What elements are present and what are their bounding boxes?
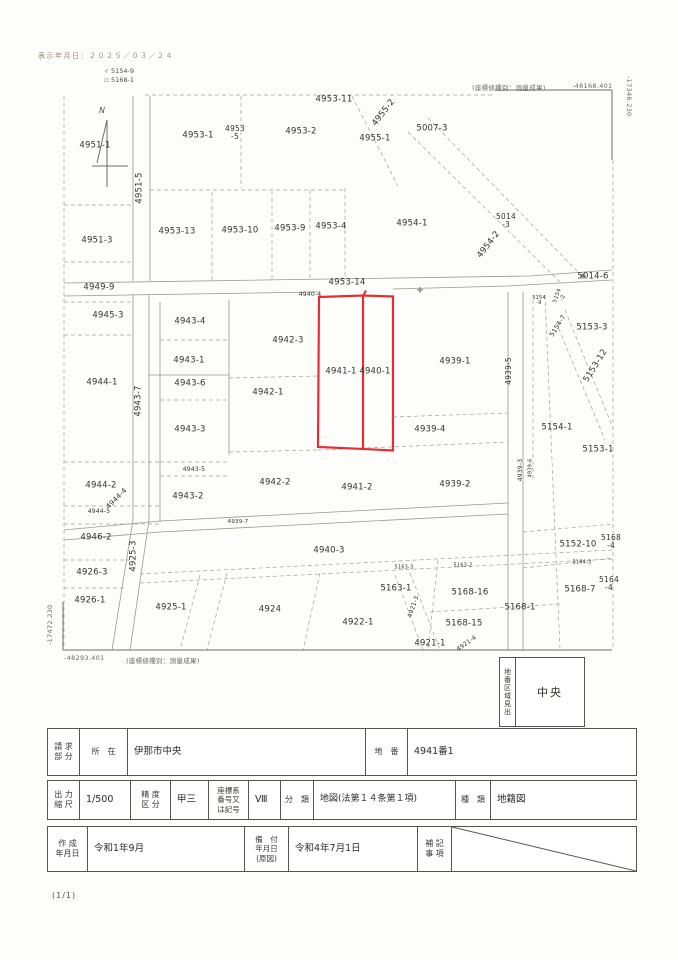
parcel-label: 4939-6 <box>528 459 533 478</box>
parcel-label: 4942-1 <box>252 389 283 398</box>
coord-type-top-right: (座標値種別：測量成果) <box>472 82 546 92</box>
table-row-dates: 作 成 年月日 令和1年9月 備 付 年月日 (原図) 令和4年7月1日 補 記… <box>47 826 637 872</box>
parcel-label: 4942-2 <box>259 479 290 488</box>
parcel-label: 4943-6 <box>174 380 205 389</box>
parcel-label: 4925-3 <box>130 540 139 571</box>
coord-value-left-edge: -17472.230 <box>46 605 54 646</box>
parcel-label: 4940-1 <box>359 368 390 377</box>
parcel-label: 4953 -5 <box>225 125 245 141</box>
parcel-label: 5152-10 <box>560 541 597 550</box>
parcel-label: 4943-1 <box>173 357 204 366</box>
north-arrow-label: N <box>99 106 105 115</box>
parcel-label: 4946-2 <box>80 534 111 543</box>
parcel-label: 4921-1 <box>414 640 445 649</box>
parcel-label: 4926-3 <box>76 569 107 578</box>
coord-type-bottom-left: (座標値種別：測量成果) <box>126 655 200 665</box>
parcel-label: 5154 -9 <box>532 296 546 307</box>
coord-value-bottom-left: -48293.401 <box>64 654 105 662</box>
header-requested-part: 請 求 部 分 <box>48 729 80 775</box>
table-row-location: 請 求 部 分 所 在 伊那市中央 地 番 4941番1 <box>47 728 637 776</box>
page-number: (1/1) <box>52 891 76 900</box>
parcel-label: 5163-1 <box>380 585 411 594</box>
parcel-label: 4943-4 <box>174 318 205 327</box>
value-coordinate-system: Ⅷ <box>249 781 281 819</box>
parcel-label: 4940-3 <box>313 547 344 556</box>
parcel-label: 5153-3 <box>576 324 607 333</box>
parcel-label: 4941-1 <box>325 368 356 377</box>
parcel-label: 4939-2 <box>439 481 470 490</box>
parcel-label: 5168-15 <box>446 620 483 629</box>
parcel-label: 5014 -3 <box>496 213 516 229</box>
parcel-label: 4939-7 <box>228 520 249 526</box>
district-index-title: 地番区域見出 <box>500 658 516 726</box>
parcel-label: 5014-6 <box>577 273 608 282</box>
parcel-label: 4953-13 <box>159 228 196 237</box>
parcel-label: 4953-4 <box>315 223 346 232</box>
parcel-label: 4953-2 <box>285 128 316 137</box>
parcel-label: 4943-5 <box>183 467 205 473</box>
parcel-label: 5163-2 <box>454 563 473 568</box>
value-supplementary-note-empty <box>452 827 636 871</box>
parcel-label: 5168 -4 <box>601 534 621 550</box>
parcel-label: 4925-1 <box>155 604 186 613</box>
parcel-label: 4926-1 <box>74 597 105 606</box>
parcel-label: 4940-4 <box>299 292 321 298</box>
header-precision-class: 精 度 区 分 <box>131 781 171 819</box>
parcel-label: 4949-9 <box>83 284 114 293</box>
parcel-label: 4954-1 <box>396 220 427 229</box>
parcel-label: 4924 <box>259 606 281 615</box>
parcel-label: 4944-1 <box>86 379 117 388</box>
parcel-label: 4939-1 <box>439 358 470 367</box>
parcel-label: 4942-3 <box>272 337 303 346</box>
value-classification: 地図(法第１４条第１項) <box>314 781 456 819</box>
value-precision-class: 甲三 <box>171 781 209 819</box>
parcel-label: 5168-7 <box>564 586 595 595</box>
parcel-label: 5007-3 <box>416 125 447 134</box>
parcel-label: 4951-5 <box>136 172 145 203</box>
parcel-label: 4943-3 <box>174 426 205 435</box>
parcel-label: 4955-1 <box>359 135 390 144</box>
parcel-label: 4953-11 <box>316 96 353 105</box>
value-output-scale: 1/500 <box>80 781 131 819</box>
parcel-label: 4944-2 <box>85 482 116 491</box>
value-created-date: 令和1年9月 <box>88 827 245 871</box>
header-location: 所 在 <box>80 729 128 775</box>
value-location: 伊那市中央 <box>128 729 366 775</box>
header-created-date: 作 成 年月日 <box>48 827 88 871</box>
parcel-label: 4943-2 <box>172 493 203 502</box>
parcel-label: 4951-1 <box>79 142 110 151</box>
value-lot-number: 4941番1 <box>408 729 636 775</box>
table-row-map-attributes: 出 力 縮 尺 1/500 精 度 区 分 甲三 座標系 番号又 は記号 Ⅷ 分… <box>47 780 637 820</box>
header-filed-date: 備 付 年月日 (原図) <box>245 827 289 871</box>
parcel-label: 5168-16 <box>452 589 489 598</box>
header-coordinate-system: 座標系 番号又 は記号 <box>209 781 249 819</box>
header-classification: 分 類 <box>281 781 314 819</box>
parcel-label: 4939-5 <box>505 357 513 385</box>
parcel-label: 5164-3 <box>573 560 592 565</box>
parcel-label: 5168-1 <box>504 604 535 613</box>
coord-value-top-right: -48168.401 <box>572 82 613 90</box>
header-supplementary-note: 補 記 事 項 <box>418 827 452 871</box>
coord-value-right-edge: -17346.230 <box>625 76 633 117</box>
value-filed-date: 令和4年7月1日 <box>289 827 418 871</box>
value-kind: 地籍図 <box>491 781 636 819</box>
parcel-label: 4953-14 <box>329 279 366 288</box>
parcel-label: 4943-7 <box>135 385 144 416</box>
parcel-label: 4945-3 <box>92 312 123 321</box>
parcel-label: 4953-1 <box>182 132 213 141</box>
district-index-box: 地番区域見出 中央 <box>499 657 585 727</box>
parcel-label: 4922-1 <box>342 619 373 628</box>
header-output-scale: 出 力 縮 尺 <box>48 781 80 819</box>
parcel-label: 4951-3 <box>81 237 112 246</box>
parcel-label: 5153-1 <box>582 446 613 455</box>
district-index-value: 中央 <box>516 658 584 726</box>
cadastral-map-document: { "page": { "print_date": "表示年月日：２０２５／０３… <box>0 0 678 960</box>
parcel-label: 5164 -4 <box>599 576 619 592</box>
header-lot-number: 地 番 <box>366 729 408 775</box>
parcel-label: 4939-4 <box>414 426 445 435</box>
parcel-label: 5163-3 <box>395 565 414 570</box>
parcel-label: 5154-1 <box>541 424 572 433</box>
parcel-label: 4941-2 <box>341 484 372 493</box>
diagonal-strike <box>452 827 636 871</box>
parcel-label: 4953-9 <box>274 225 305 234</box>
header-kind: 種 類 <box>456 781 491 819</box>
parcel-label: 4953-10 <box>222 227 259 236</box>
parcel-label: 4939-3 <box>518 459 524 481</box>
parcel-label: 4944-5 <box>88 509 110 515</box>
